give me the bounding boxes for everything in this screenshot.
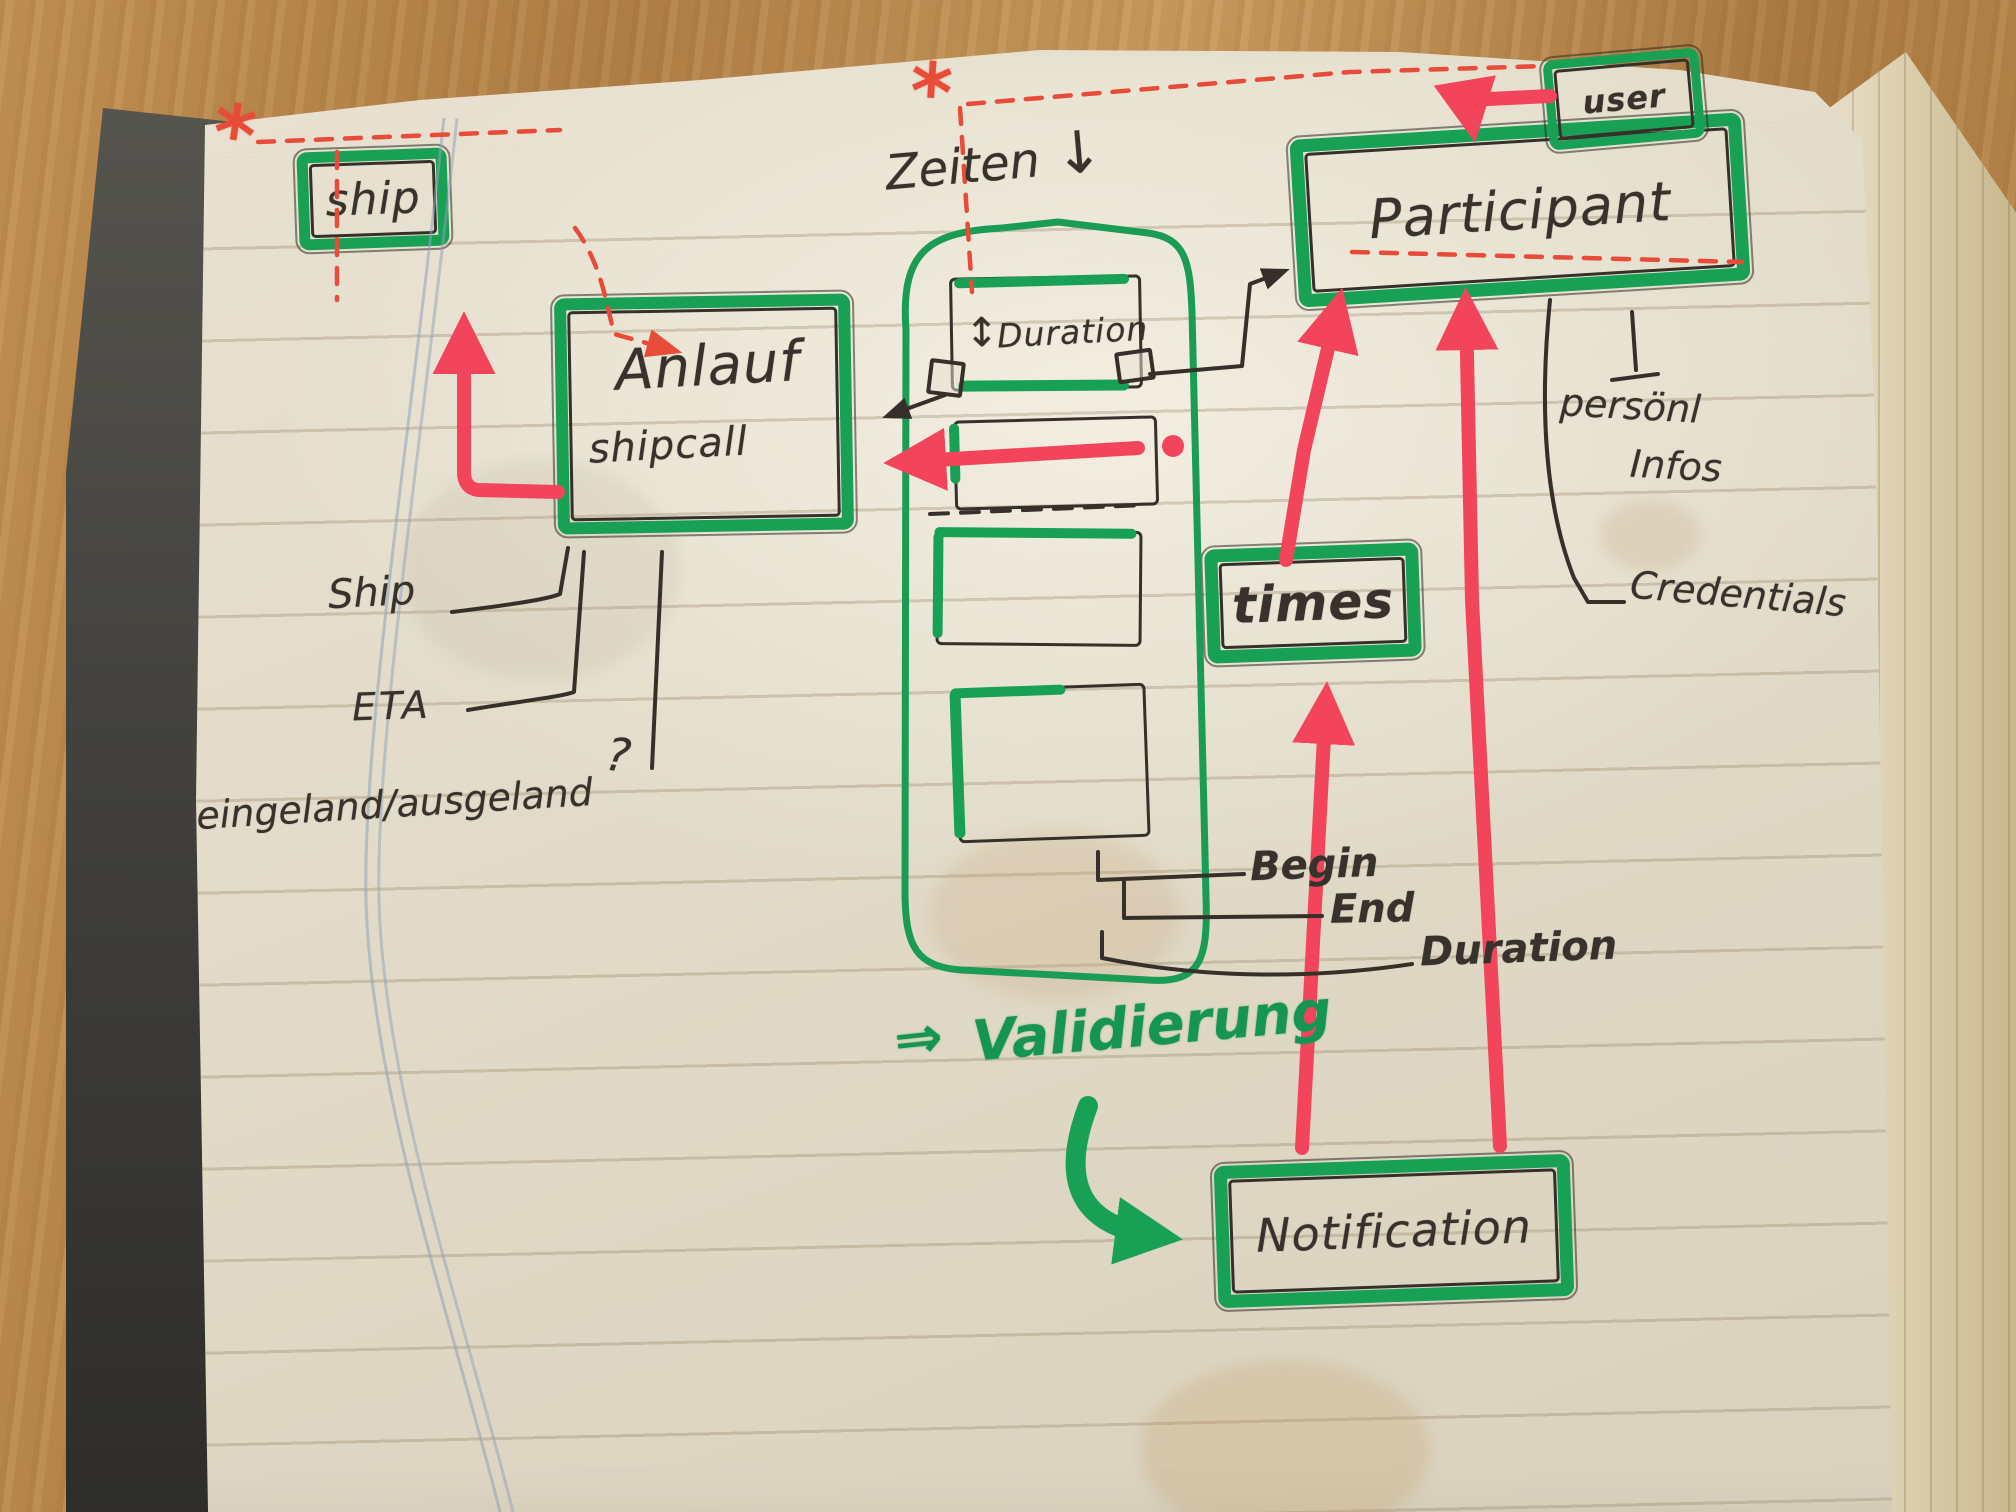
times-box: times xyxy=(1204,542,1422,663)
anlauf-shipcall-box: Anlauf shipcall xyxy=(554,293,854,534)
attribute-box-2-green-edge xyxy=(933,532,944,638)
user-box: user xyxy=(1542,47,1705,150)
participant-box: Participant xyxy=(1289,112,1750,307)
anlauf-box-label: Anlauf xyxy=(614,329,802,404)
shipcall-box-sublabel: shipcall xyxy=(587,418,749,472)
ship-box: ship xyxy=(296,147,449,250)
participant-box-label: Participant xyxy=(1367,169,1673,250)
ship-attr-label: Ship xyxy=(327,568,417,619)
notification-box: Notification xyxy=(1214,1154,1575,1308)
attribute-box-1-green-edge xyxy=(949,424,961,485)
duration-box-green-bottom xyxy=(958,379,1129,391)
infos-label: Infos xyxy=(1629,442,1723,491)
asterisk-participant: * xyxy=(907,45,955,141)
duration-box: ↕ Duration xyxy=(949,274,1143,391)
attribute-box-2-green-top xyxy=(934,527,1136,539)
duration-anchor-square-right xyxy=(1114,348,1156,385)
attribute-box-3 xyxy=(953,683,1150,844)
attribute-box-1 xyxy=(953,415,1159,510)
participant-box-inner: Participant xyxy=(1304,127,1736,293)
user-box-label: user xyxy=(1581,76,1667,121)
duration-updown-arrow: ↕ xyxy=(965,310,1000,357)
stain xyxy=(930,830,1180,1000)
persoenl-label: persönl xyxy=(1559,380,1702,431)
eta-label: ETA xyxy=(351,683,431,730)
zeiten-text: Zeiten xyxy=(883,132,1042,201)
anlauf-box-inner: Anlauf shipcall xyxy=(567,307,841,522)
validierung-arrow: ⇒ xyxy=(891,1002,946,1075)
user-box-inner: user xyxy=(1553,58,1695,140)
end-label: End xyxy=(1330,885,1415,932)
begin-label: Begin xyxy=(1249,840,1379,890)
ship-box-inner: ship xyxy=(309,160,438,238)
notebook-photo: ship Anlauf shipcall ↕ Duration Particip… xyxy=(0,0,2016,1512)
notification-box-label: Notification xyxy=(1255,1199,1533,1263)
times-box-inner: times xyxy=(1219,557,1408,649)
duration-attr-label: Duration xyxy=(1419,923,1618,976)
zeiten-down-arrow: ↓ xyxy=(1052,117,1106,189)
ship-box-label: ship xyxy=(325,172,422,226)
duration-anchor-square-left xyxy=(926,358,966,398)
attribute-box-2 xyxy=(935,529,1142,647)
duration-box-label: Duration xyxy=(996,309,1149,356)
times-box-label: times xyxy=(1231,571,1395,635)
notification-box-inner: Notification xyxy=(1228,1168,1560,1293)
stain xyxy=(1600,500,1700,570)
